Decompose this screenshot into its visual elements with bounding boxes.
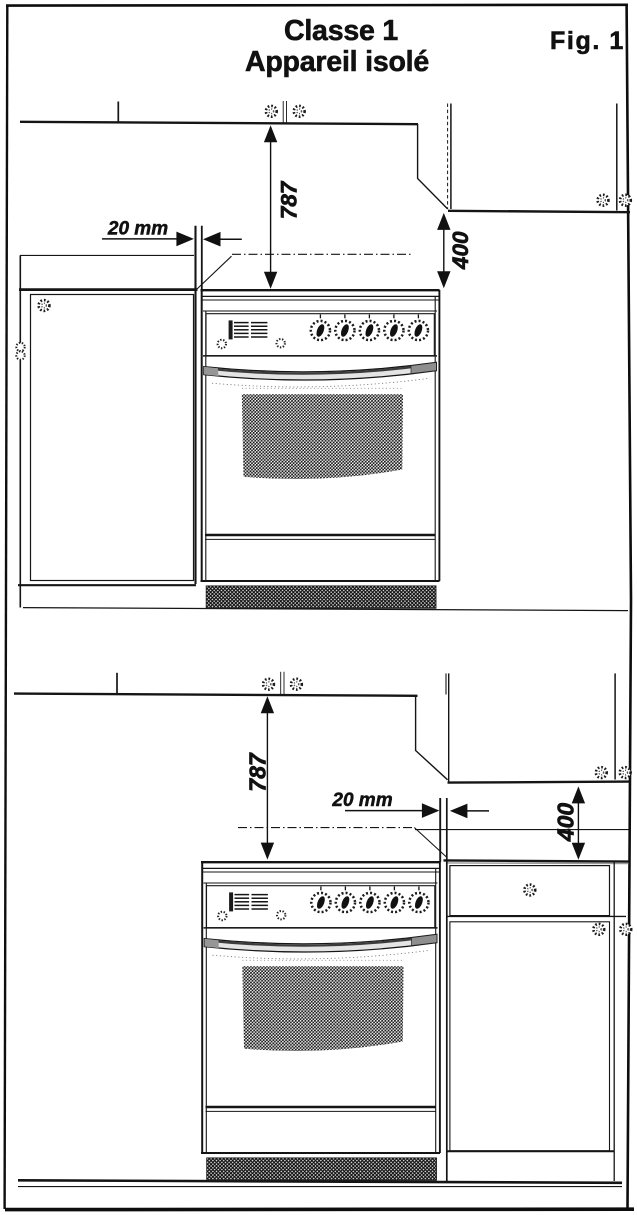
svg-text:400: 400 [448,231,473,270]
svg-text:Appareil isolé: Appareil isolé [245,46,429,78]
svg-text:400: 400 [553,803,579,843]
svg-text:20 mm: 20 mm [107,218,168,239]
svg-text:Classe 1: Classe 1 [284,15,398,47]
svg-text:20 mm: 20 mm [331,790,392,811]
svg-text:787: 787 [277,180,302,219]
svg-text:787: 787 [245,752,271,792]
svg-text:Fig. 1: Fig. 1 [550,27,625,55]
